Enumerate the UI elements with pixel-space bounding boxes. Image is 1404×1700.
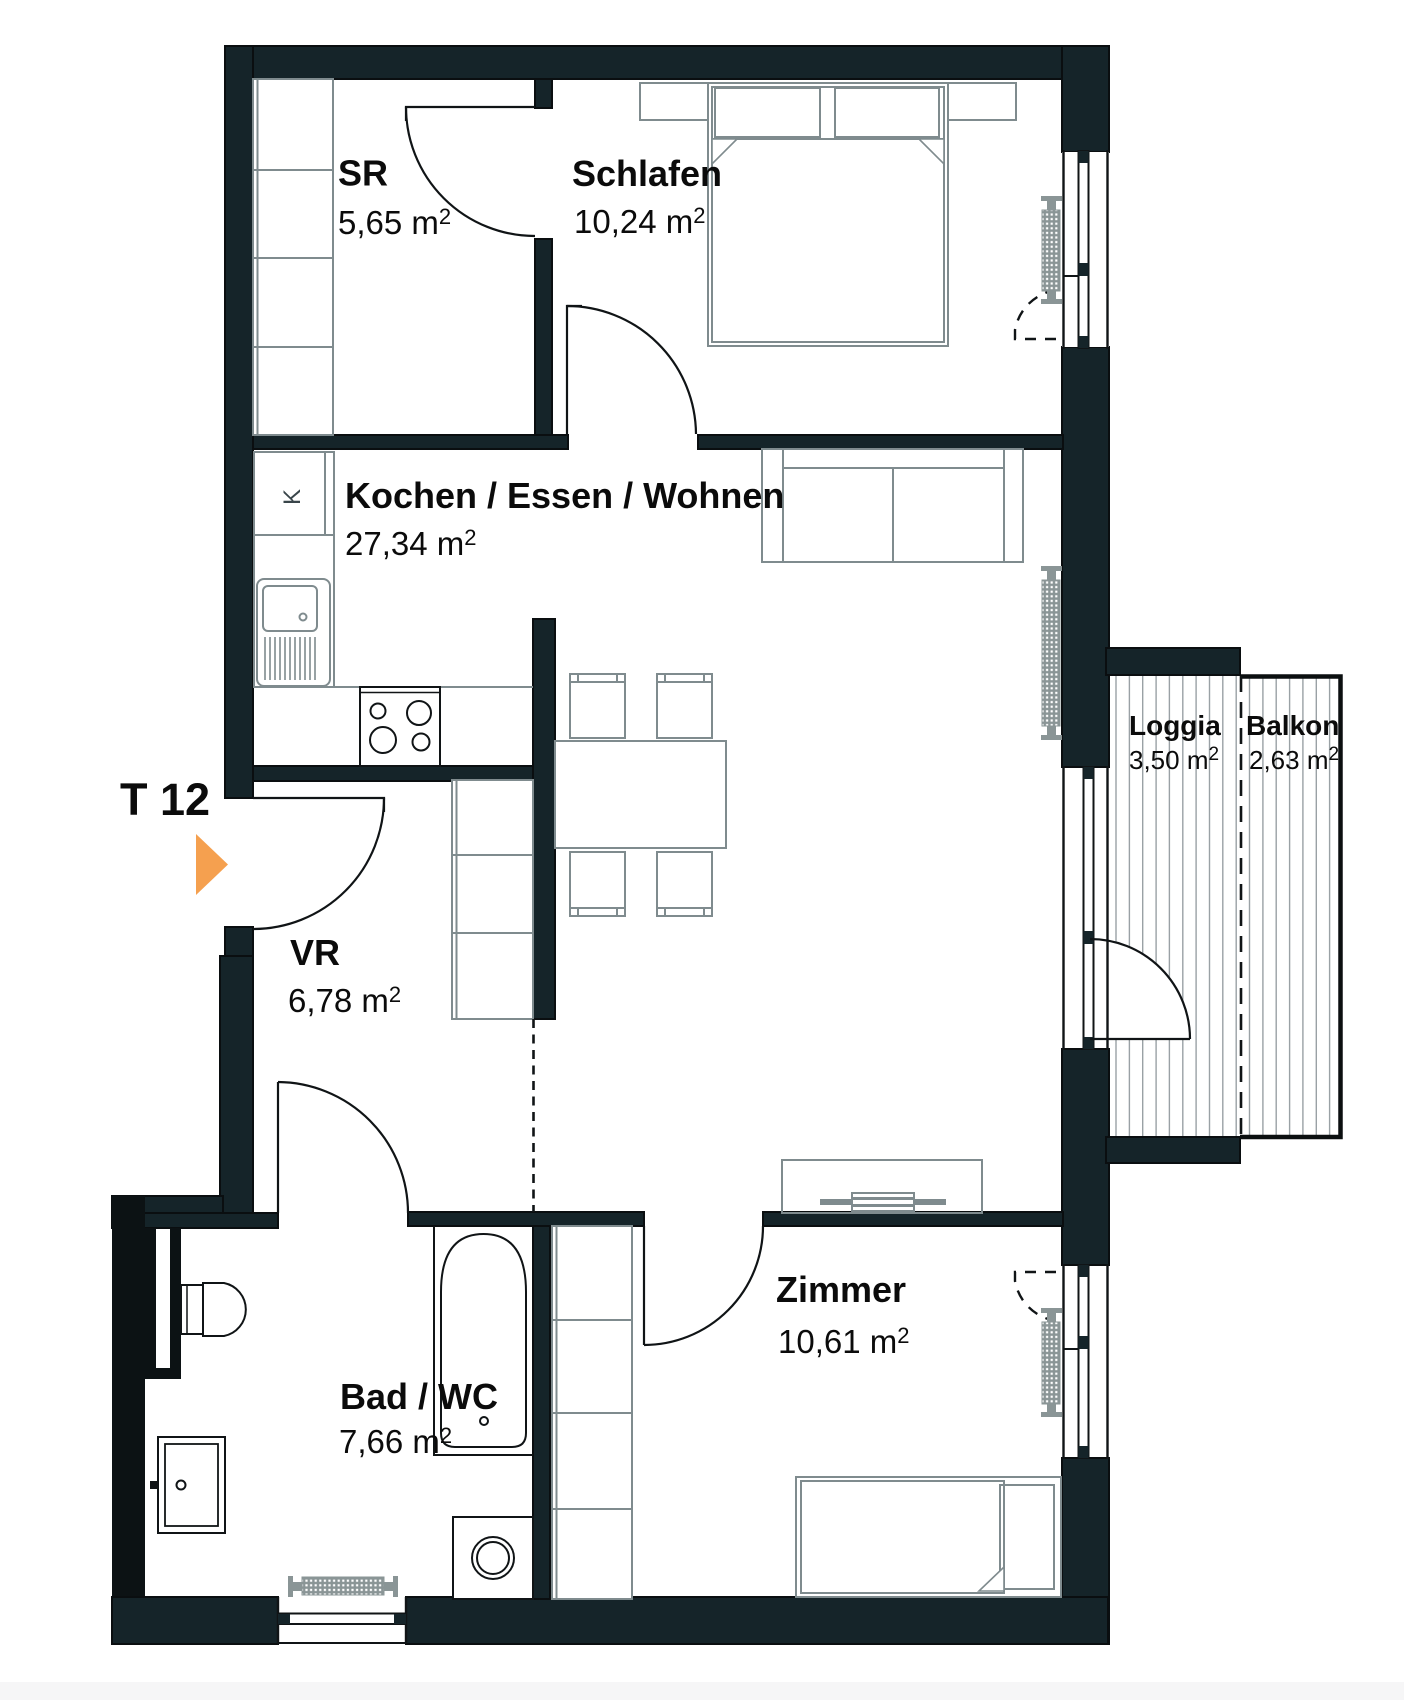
svg-text:Kochen / Essen / Wohnen: Kochen / Essen / Wohnen	[345, 475, 784, 516]
svg-text:K: K	[279, 489, 306, 505]
svg-text:5,65 m2: 5,65 m2	[338, 204, 451, 241]
svg-text:2,63 m2: 2,63 m2	[1249, 744, 1339, 775]
svg-text:27,34 m2: 27,34 m2	[345, 525, 477, 562]
svg-text:Balkon: Balkon	[1246, 710, 1339, 741]
svg-text:10,61 m2: 10,61 m2	[778, 1323, 910, 1360]
svg-text:3,50 m2: 3,50 m2	[1129, 744, 1219, 775]
svg-text:7,66 m2: 7,66 m2	[339, 1423, 452, 1460]
svg-text:VR: VR	[290, 932, 340, 973]
svg-text:Schlafen: Schlafen	[572, 153, 722, 194]
svg-text:6,78 m2: 6,78 m2	[288, 982, 401, 1019]
svg-text:10,24 m2: 10,24 m2	[574, 203, 706, 240]
svg-text:Bad / WC: Bad / WC	[340, 1376, 498, 1417]
svg-text:SR: SR	[338, 153, 388, 194]
svg-text:Zimmer: Zimmer	[776, 1269, 906, 1310]
svg-text:T 12: T 12	[120, 774, 210, 825]
svg-text:Loggia: Loggia	[1129, 710, 1221, 741]
